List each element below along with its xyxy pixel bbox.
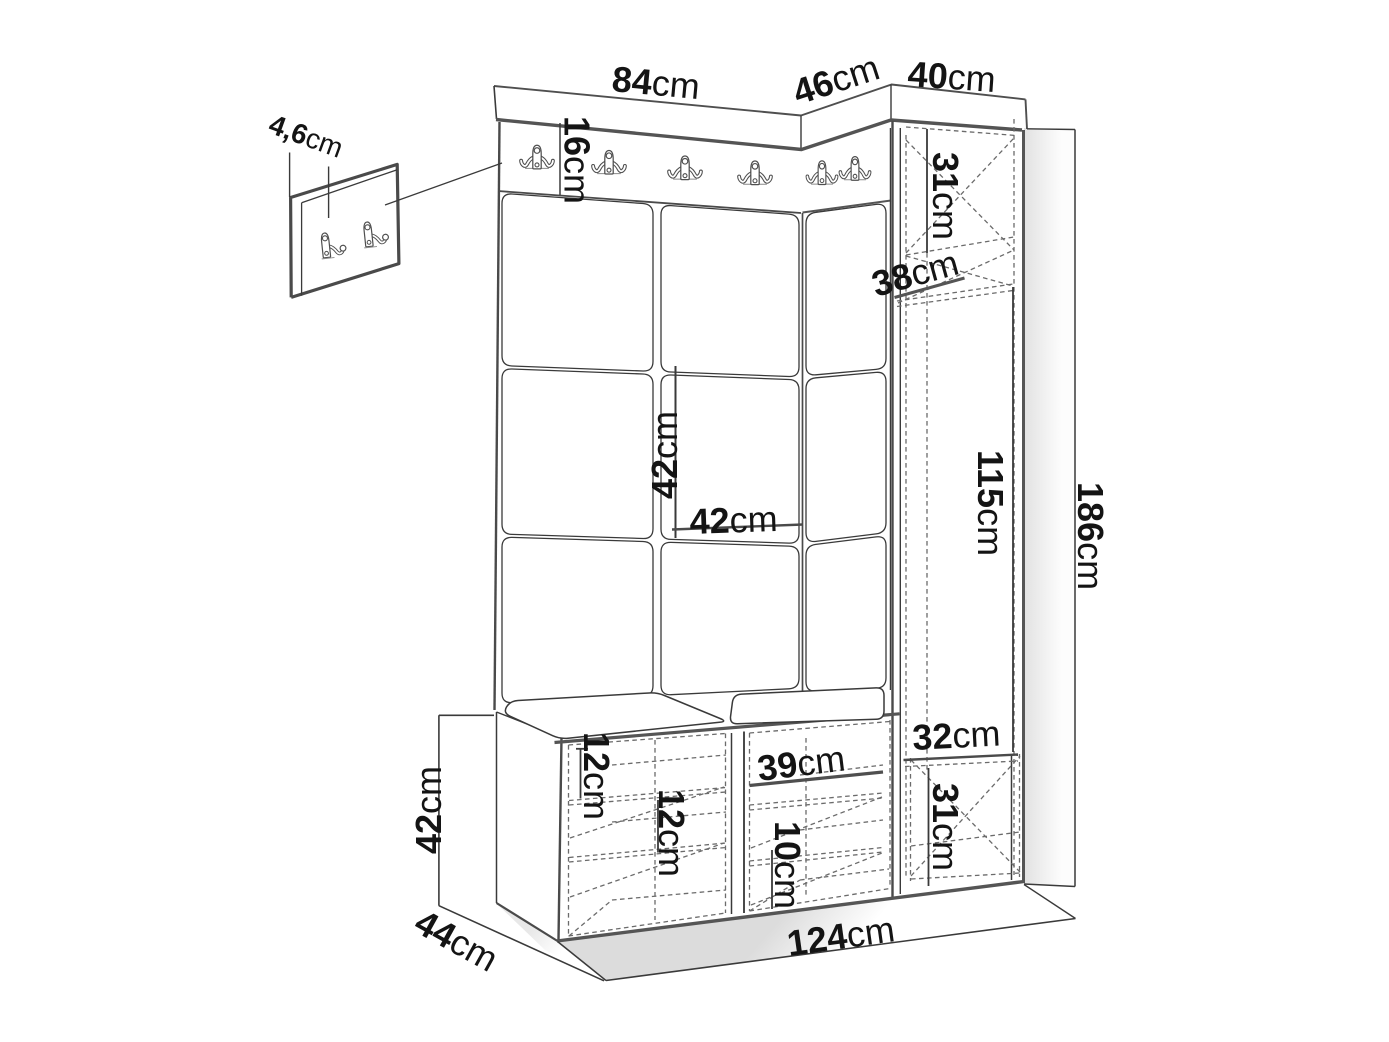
svg-text:84cm: 84cm bbox=[610, 58, 701, 107]
svg-text:115cm: 115cm bbox=[970, 450, 1011, 556]
svg-text:16cm: 16cm bbox=[557, 116, 598, 204]
svg-text:40cm: 40cm bbox=[906, 53, 997, 100]
svg-text:12cm: 12cm bbox=[576, 732, 617, 820]
svg-text:10cm: 10cm bbox=[767, 821, 808, 909]
svg-text:186cm: 186cm bbox=[1070, 482, 1111, 590]
svg-text:42cm: 42cm bbox=[408, 766, 449, 854]
svg-text:32cm: 32cm bbox=[911, 712, 1001, 758]
svg-text:12cm: 12cm bbox=[651, 789, 692, 877]
svg-text:31cm: 31cm bbox=[925, 783, 966, 871]
svg-text:31cm: 31cm bbox=[925, 152, 966, 240]
svg-text:42cm: 42cm bbox=[644, 411, 685, 499]
svg-text:42cm: 42cm bbox=[689, 498, 778, 542]
